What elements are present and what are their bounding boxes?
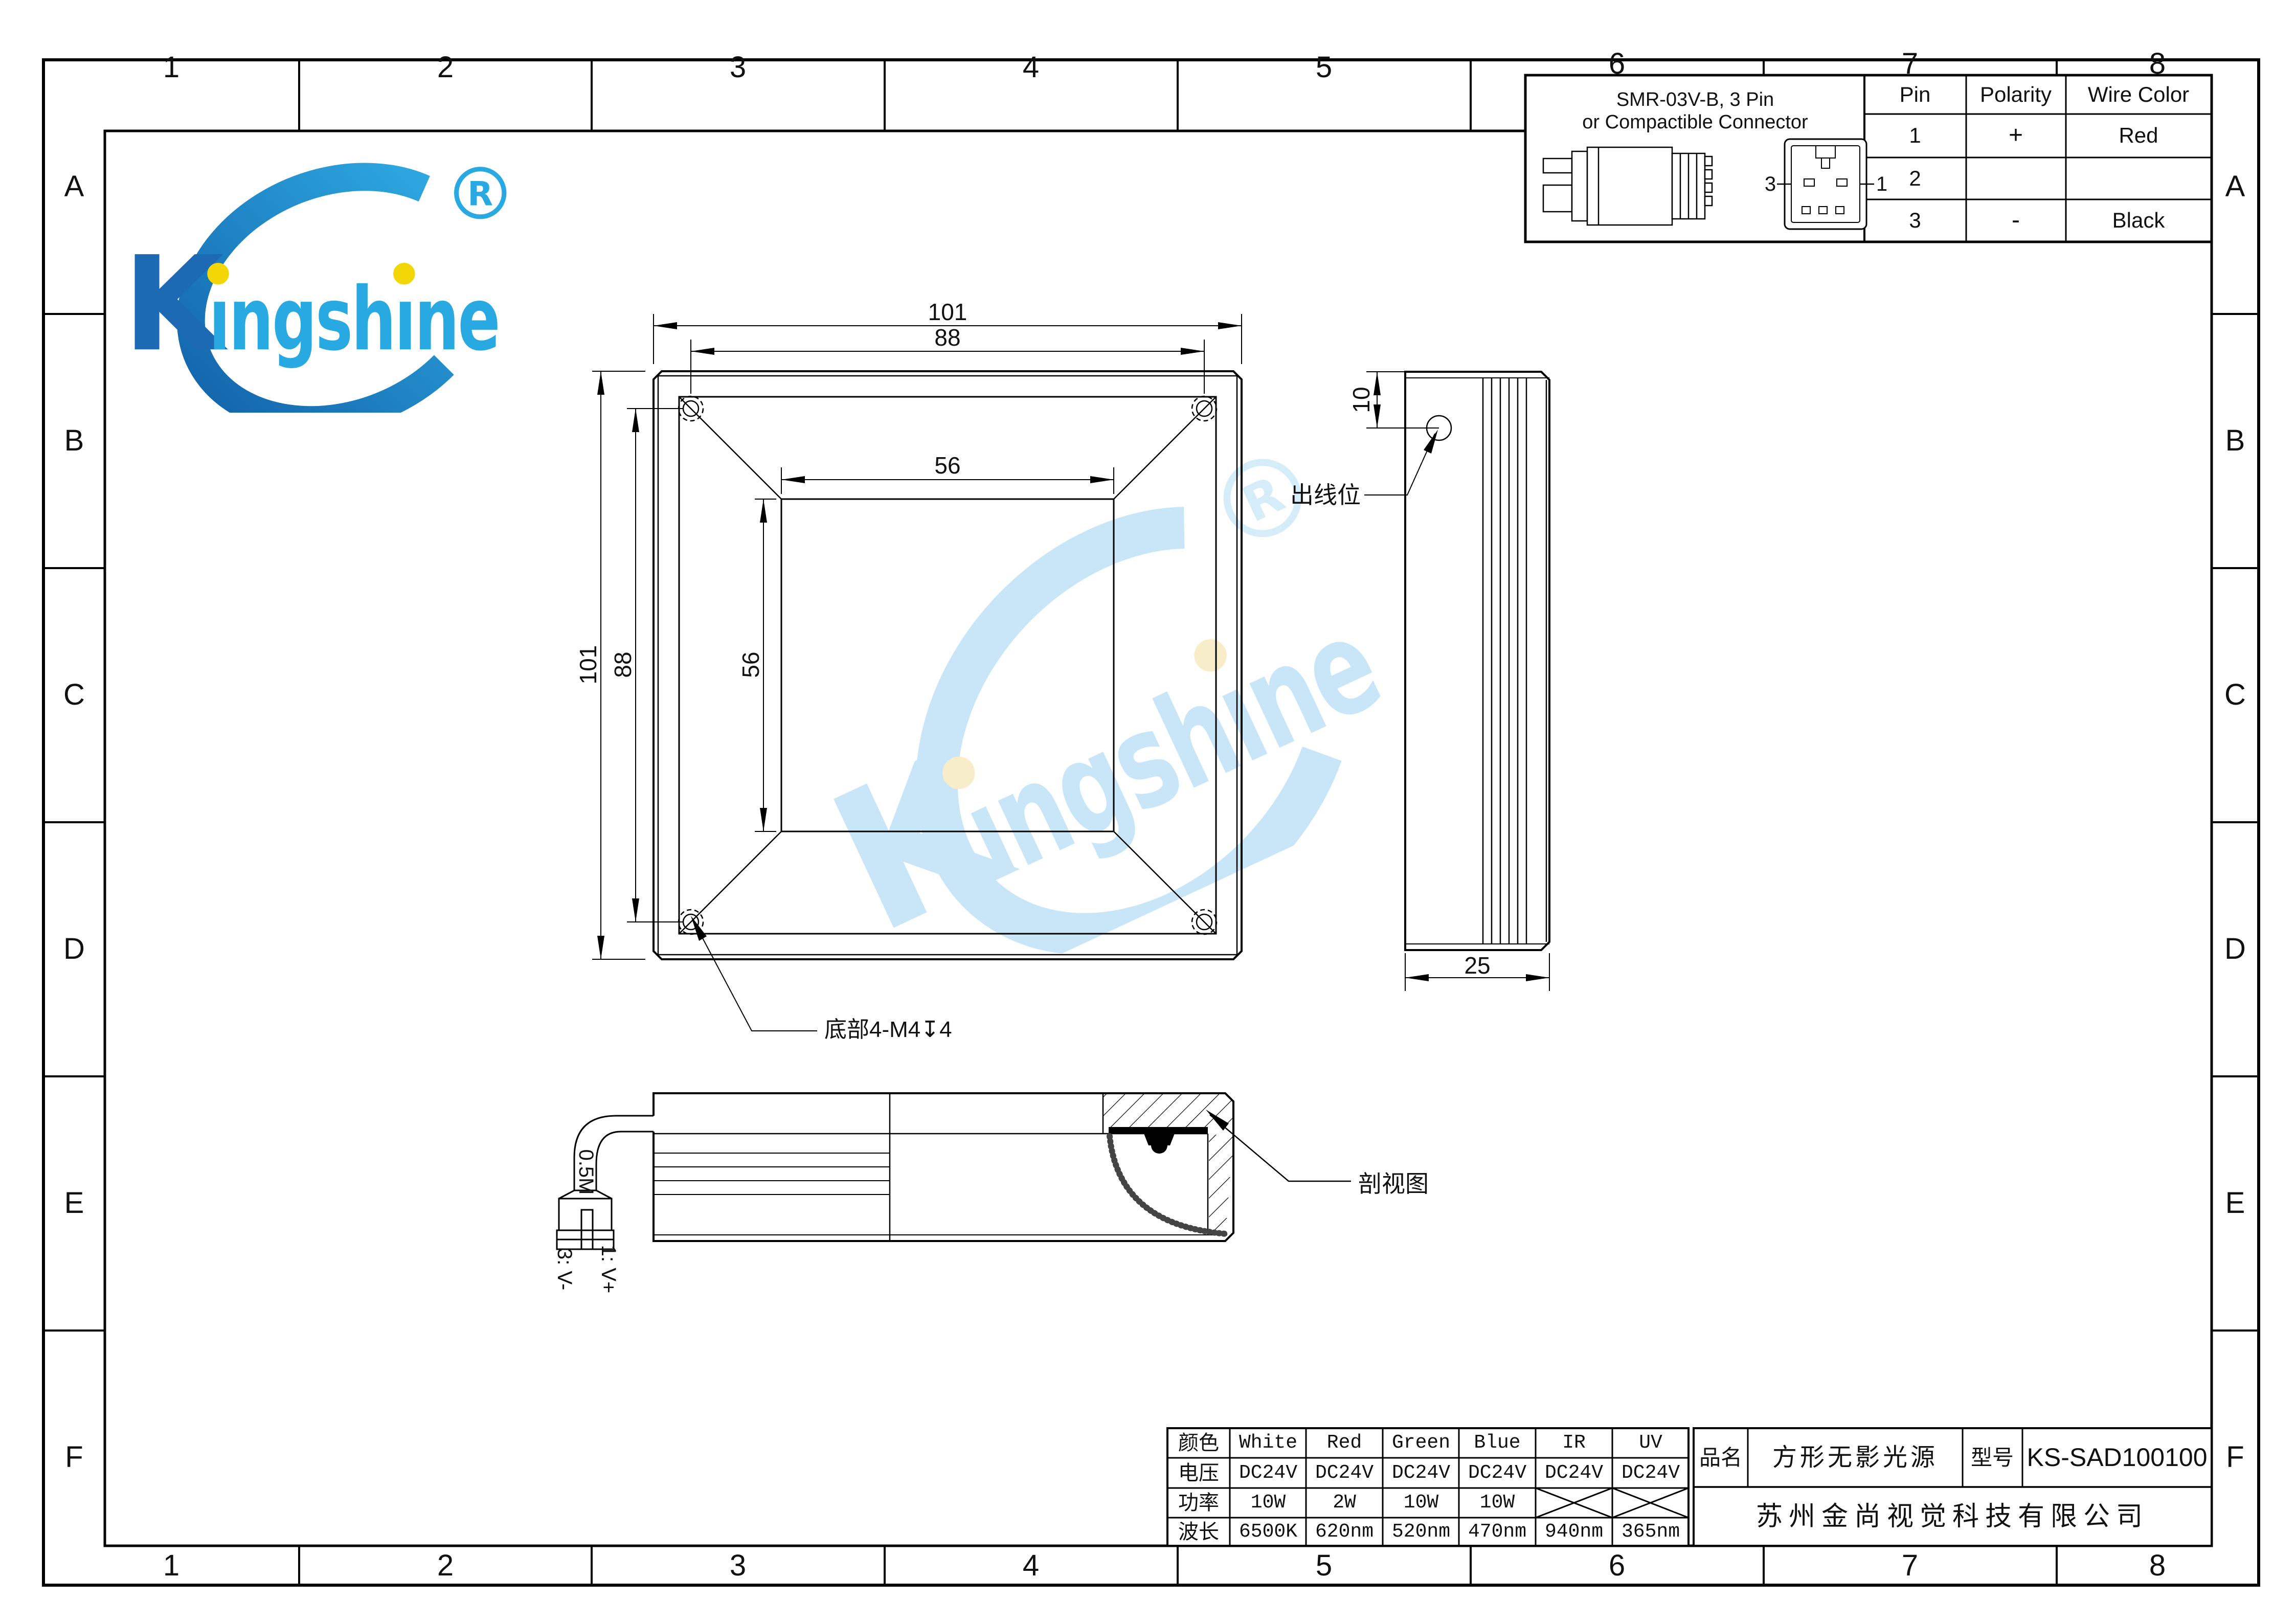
spec-wavelength-red: 620nm <box>1315 1522 1374 1542</box>
title-name-label: 品名 <box>1699 1447 1742 1469</box>
text-layer: 1 2 3 4 5 6 7 8 1 2 3 4 5 6 7 8 A B C D … <box>0 0 2296 1623</box>
spec-voltage-green: DC24V <box>1392 1463 1450 1483</box>
pin-table-row2-pin: 2 <box>1909 168 1921 189</box>
zone-col-4-top: 4 <box>1023 53 1039 82</box>
spec-power-white: 10W <box>1251 1493 1286 1513</box>
zone-col-8-bottom: 8 <box>2149 1551 2166 1581</box>
spec-color-green: Green <box>1392 1433 1450 1453</box>
zone-col-8-top: 8 <box>2149 49 2166 79</box>
spec-voltage-blue: DC24V <box>1468 1463 1526 1483</box>
cable-length-label: 0.5M <box>576 1149 596 1195</box>
connector-pin3-label: 3 <box>1765 174 1776 194</box>
dim-height-holes: 88 <box>611 651 635 678</box>
zone-row-e-left: E <box>64 1188 84 1218</box>
spec-voltage-red: DC24V <box>1315 1463 1374 1483</box>
spec-color-blue: Blue <box>1474 1433 1520 1453</box>
pin-table-header-wirecolor: Wire Color <box>2088 84 2189 105</box>
connector-title-line1: SMR-03V-B, 3 Pin <box>1616 90 1774 109</box>
zone-row-b-right: B <box>2225 426 2245 456</box>
dim-outlet-offset: 10 <box>1349 387 1373 413</box>
connector-pin1-label: 1 <box>1876 174 1887 194</box>
spec-power-green: 10W <box>1404 1493 1438 1513</box>
title-product-name: 方形无影光源 <box>1772 1446 1938 1470</box>
spec-voltage-uv: DC24V <box>1622 1463 1680 1483</box>
dim-height-aperture: 56 <box>739 651 762 678</box>
zone-col-7-top: 7 <box>1902 49 1918 79</box>
spec-wavelength-uv: 365nm <box>1622 1522 1680 1542</box>
cable-pin1-label: 1: V+ <box>598 1245 619 1294</box>
pin-table-header-polarity: Polarity <box>1980 84 2052 105</box>
drawing-sheet: K ıngshıne R <box>0 0 2296 1623</box>
spec-wavelength-ir: 940nm <box>1545 1522 1603 1542</box>
zone-row-d-right: D <box>2224 934 2246 964</box>
zone-col-6-bottom: 6 <box>1609 1551 1625 1581</box>
zone-col-3-top: 3 <box>730 53 746 82</box>
zone-col-2-bottom: 2 <box>437 1551 454 1581</box>
zone-row-e-right: E <box>2225 1188 2245 1218</box>
zone-row-c-right: C <box>2224 680 2246 710</box>
spec-color-uv: UV <box>1639 1433 1662 1453</box>
spec-voltage-white: DC24V <box>1239 1463 1297 1483</box>
section-label: 剖视图 <box>1358 1172 1429 1196</box>
zone-row-c-left: C <box>63 680 85 710</box>
outlet-label: 出线位 <box>1290 483 1361 507</box>
pin-table-row3-pin: 3 <box>1909 210 1921 231</box>
zone-col-1-bottom: 1 <box>163 1551 179 1581</box>
spec-wavelength-blue: 470nm <box>1468 1522 1526 1542</box>
connector-title-line2: or Compactible Connector <box>1582 112 1808 132</box>
zone-row-a-left: A <box>64 172 84 201</box>
dim-width-holes: 88 <box>934 326 960 349</box>
dim-thickness: 25 <box>1464 954 1490 977</box>
dim-width-outer: 101 <box>928 300 967 324</box>
spec-row-color-label: 颜色 <box>1178 1433 1219 1453</box>
dim-width-aperture: 56 <box>934 454 960 477</box>
spec-color-ir: IR <box>1562 1433 1586 1453</box>
pin-table-row3-color: Black <box>2112 210 2165 231</box>
cable-pin3-label: 3: V- <box>554 1248 575 1290</box>
spec-power-red: 2W <box>1333 1493 1356 1513</box>
title-model-label: 型号 <box>1971 1447 2014 1469</box>
zone-row-d-left: D <box>63 934 85 964</box>
zone-col-4-bottom: 4 <box>1023 1551 1039 1581</box>
zone-col-5-bottom: 5 <box>1316 1551 1332 1581</box>
dim-height-outer: 101 <box>576 645 600 685</box>
zone-col-6-top: 6 <box>1609 49 1625 79</box>
zone-col-7-bottom: 7 <box>1902 1551 1918 1581</box>
zone-col-2-top: 2 <box>437 53 454 82</box>
zone-col-3-bottom: 3 <box>730 1551 746 1581</box>
zone-row-f-left: F <box>65 1442 83 1472</box>
zone-col-1-top: 1 <box>163 53 179 82</box>
spec-power-blue: 10W <box>1480 1493 1515 1513</box>
pin-table-row1-polarity: + <box>2009 123 2023 148</box>
spec-wavelength-green: 520nm <box>1392 1522 1450 1542</box>
spec-color-red: Red <box>1327 1433 1362 1453</box>
hole-note-label: 底部4-M4↧4 <box>824 1019 952 1041</box>
pin-table-row1-pin: 1 <box>1909 125 1921 146</box>
spec-row-wavelength-label: 波长 <box>1178 1522 1219 1542</box>
pin-table-row3-polarity: - <box>2012 208 2020 233</box>
zone-row-f-right: F <box>2226 1442 2244 1472</box>
zone-row-b-left: B <box>64 426 84 456</box>
title-model-code: KS-SAD100100 <box>2027 1445 2207 1470</box>
pin-table-header-pin: Pin <box>1900 84 1931 105</box>
spec-voltage-ir: DC24V <box>1545 1463 1603 1483</box>
zone-row-a-right: A <box>2225 172 2245 201</box>
spec-row-voltage-label: 电压 <box>1178 1463 1219 1483</box>
spec-color-white: White <box>1239 1433 1297 1453</box>
spec-row-power-label: 功率 <box>1178 1493 1219 1513</box>
spec-wavelength-white: 6500K <box>1239 1522 1297 1542</box>
title-company-name: 苏州金尚视觉科技有限公司 <box>1756 1503 2149 1530</box>
zone-col-5-top: 5 <box>1316 53 1332 82</box>
pin-table-row1-color: Red <box>2119 125 2158 146</box>
